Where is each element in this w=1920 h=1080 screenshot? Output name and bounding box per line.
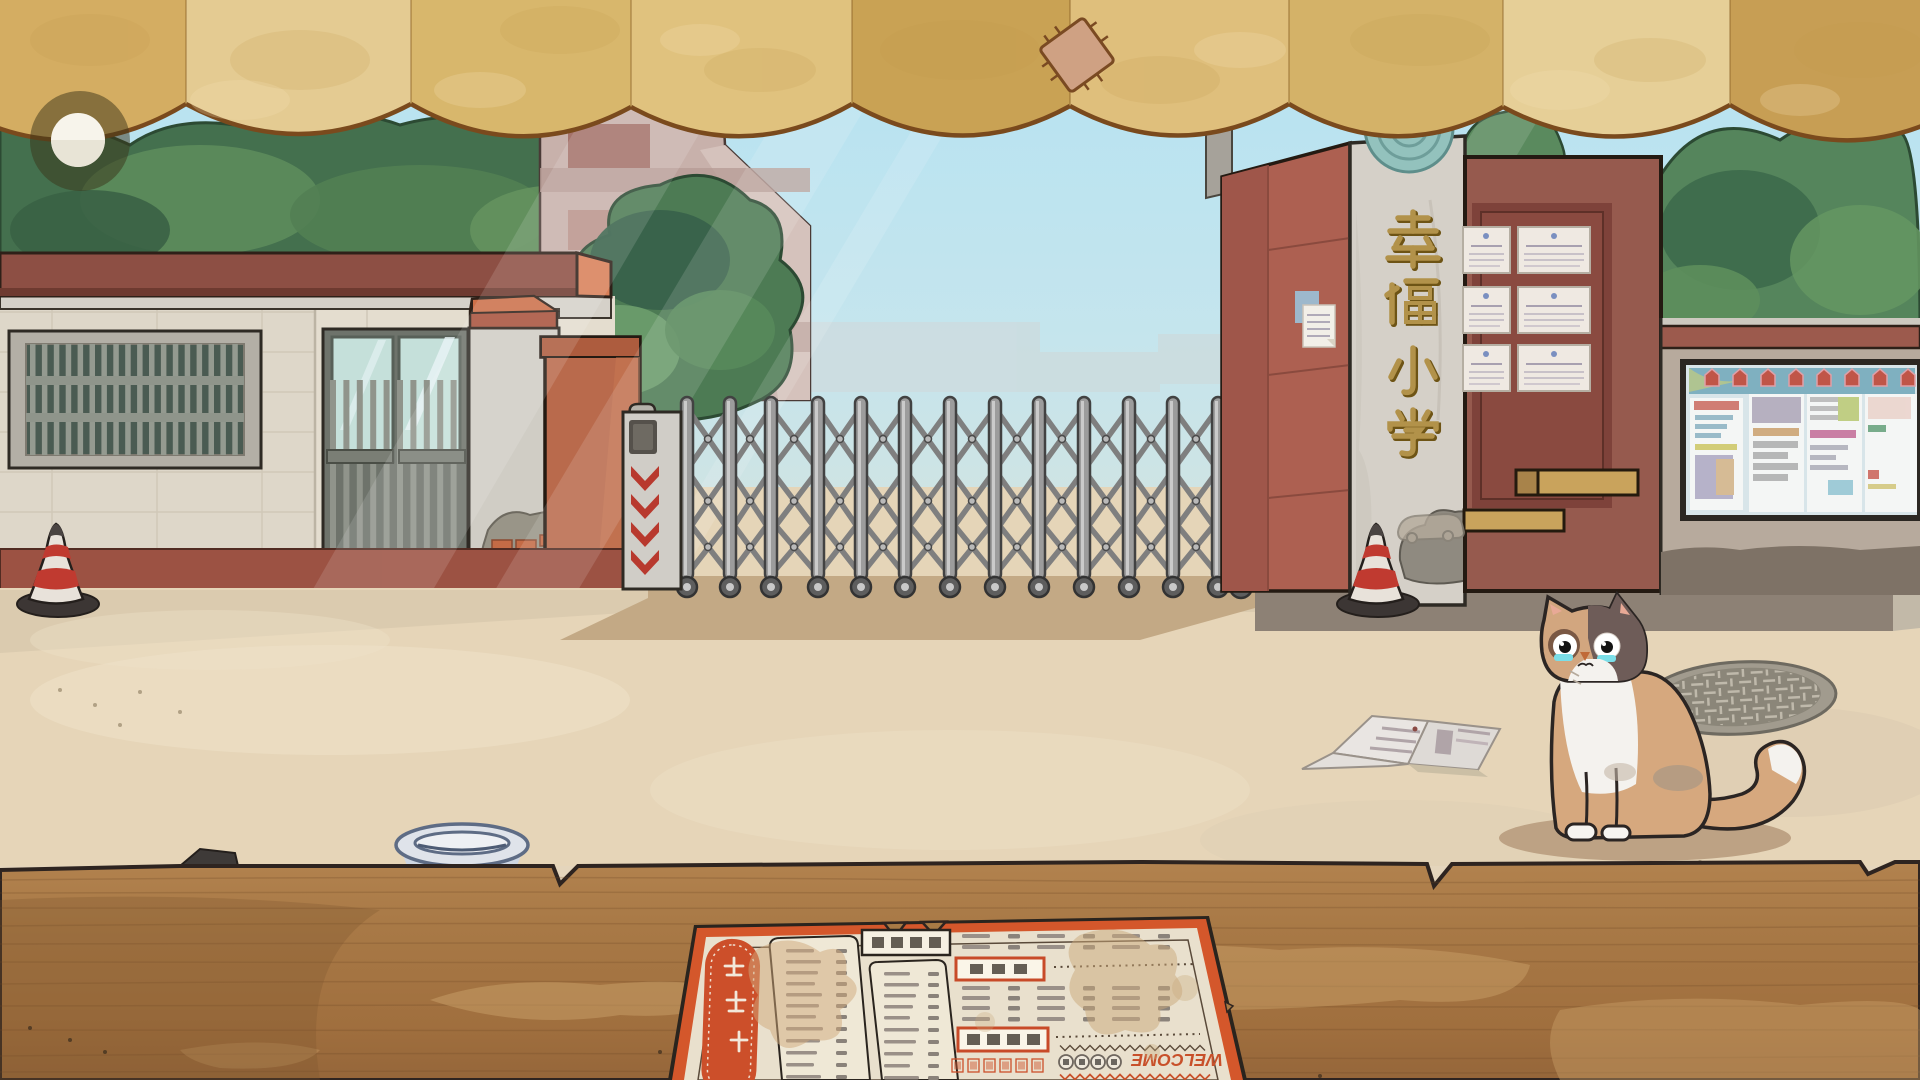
svg-text:WELCOME: WELCOME bbox=[1130, 1050, 1223, 1070]
